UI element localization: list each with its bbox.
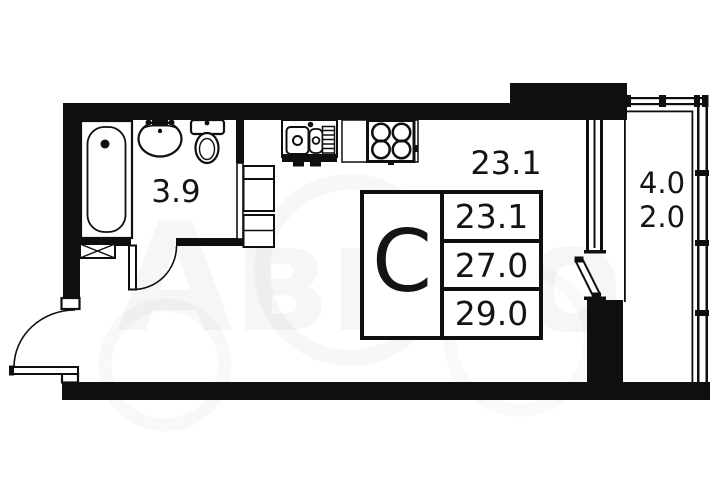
stove — [342, 120, 418, 165]
bathroom-door-leaf — [129, 246, 136, 290]
wall-bathroom-right-upper — [236, 120, 244, 163]
window-sill — [584, 250, 606, 254]
kitchen-drainer — [323, 127, 335, 159]
wall-top-right-block — [510, 83, 627, 120]
balcony-area-label: 4.0 2.0 — [626, 166, 698, 234]
balcony-area-full: 4.0 — [626, 166, 698, 200]
kitchen-sink — [282, 120, 337, 167]
entry-door — [9, 298, 80, 383]
glazing-post — [694, 95, 700, 107]
washbasin-faucet — [152, 119, 168, 127]
vent-shaft — [80, 244, 115, 258]
glazing-post — [659, 95, 666, 107]
bathtub-drain — [101, 140, 110, 149]
floor-plan: Авито — [0, 0, 720, 481]
balcony-area-reduced: 2.0 — [626, 200, 698, 234]
wall-left — [63, 103, 80, 298]
glazing-post — [702, 95, 709, 107]
area-value-row: 27.0 — [444, 243, 539, 292]
area-value-row: 23.1 — [444, 194, 539, 243]
entry-door-jamb-top — [62, 298, 80, 309]
wall-balcony-pier — [587, 300, 623, 384]
bathtub — [81, 121, 132, 238]
wall-bathroom-bottom-right — [176, 238, 243, 246]
area-legend-table: С 23.1 27.0 29.0 — [360, 190, 543, 340]
toilet-flush-button — [205, 121, 210, 126]
glazing-post — [695, 310, 709, 316]
bathroom-area-label: 3.9 — [139, 175, 213, 209]
washbasin — [139, 119, 182, 157]
entry-door-arc — [14, 310, 75, 367]
main-room-area-label: 23.1 — [452, 146, 560, 180]
unit-type-letter: С — [364, 194, 444, 336]
balcony-glazing — [624, 95, 709, 383]
entry-door-leaf — [13, 367, 78, 374]
wall-bathroom-right-lower — [237, 163, 243, 239]
area-value-row: 29.0 — [444, 291, 539, 336]
balcony-inner-right-line — [692, 111, 694, 383]
glazing-post — [695, 240, 709, 246]
area-values-column: 23.1 27.0 29.0 — [444, 194, 539, 336]
glazing-post — [624, 95, 631, 107]
wall-bottom — [62, 382, 710, 400]
balcony-inner-top-line — [624, 111, 692, 113]
toilet — [191, 120, 224, 163]
kitchen-faucet — [308, 122, 314, 128]
cabinets — [244, 166, 275, 247]
